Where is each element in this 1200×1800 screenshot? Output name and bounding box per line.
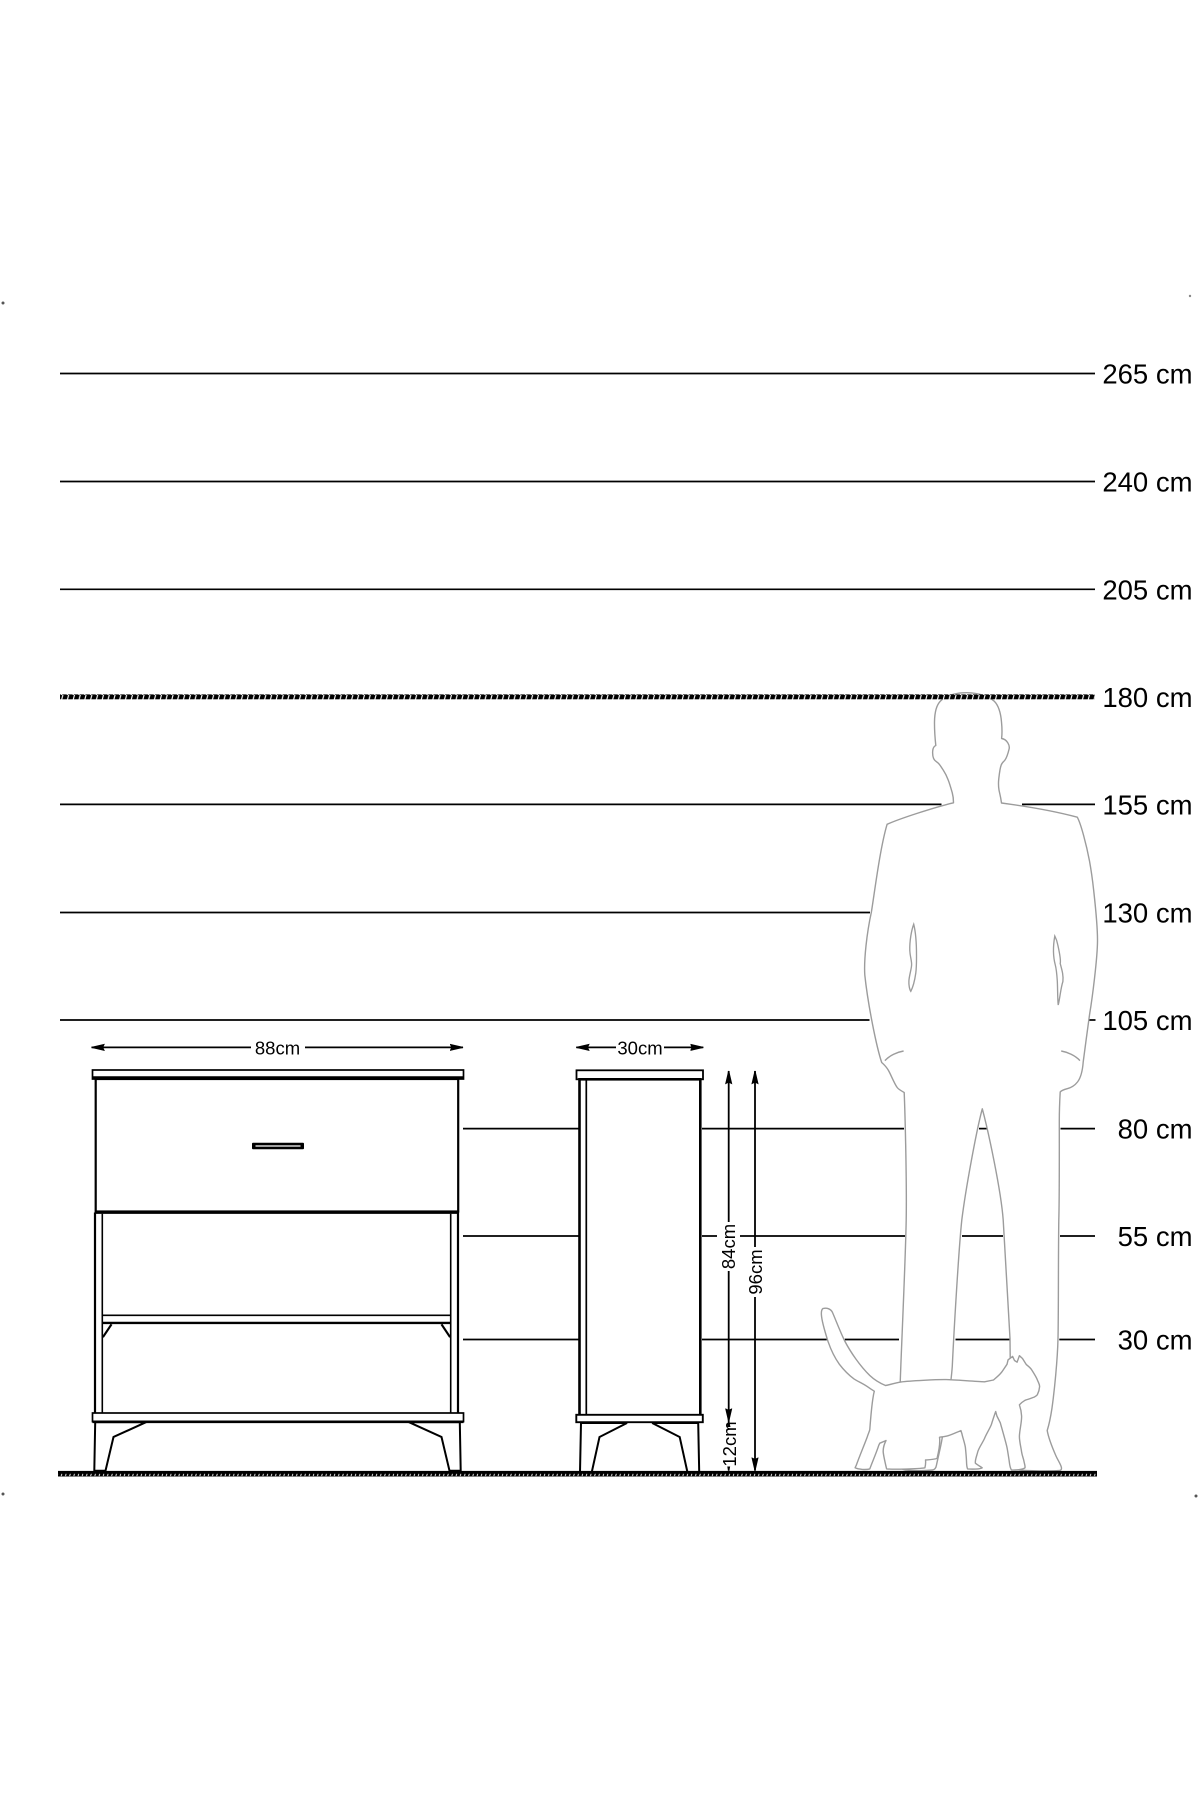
svg-text:155 cm: 155 cm xyxy=(1102,789,1192,820)
svg-text:205 cm: 205 cm xyxy=(1102,574,1192,605)
svg-text:84cm: 84cm xyxy=(718,1224,739,1269)
svg-text:30 cm: 30 cm xyxy=(1118,1325,1193,1356)
svg-text:240 cm: 240 cm xyxy=(1102,467,1192,498)
svg-text:88cm: 88cm xyxy=(255,1038,300,1059)
svg-text:265 cm: 265 cm xyxy=(1102,359,1192,390)
svg-text:180 cm: 180 cm xyxy=(1102,682,1192,713)
svg-text:105 cm: 105 cm xyxy=(1102,1005,1192,1036)
svg-text:30cm: 30cm xyxy=(617,1038,662,1059)
svg-text:12cm: 12cm xyxy=(719,1421,740,1466)
svg-text:130 cm: 130 cm xyxy=(1102,898,1192,929)
svg-text:96cm: 96cm xyxy=(745,1249,766,1294)
svg-text:80 cm: 80 cm xyxy=(1118,1114,1193,1145)
svg-text:55 cm: 55 cm xyxy=(1118,1221,1193,1252)
